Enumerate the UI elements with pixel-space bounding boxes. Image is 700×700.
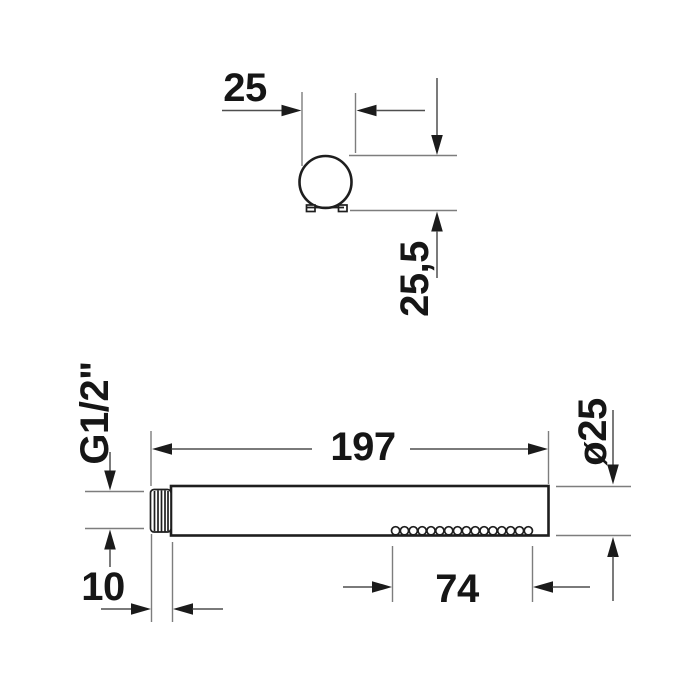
head-circle [300,156,352,208]
dim-nozzle-field-74: 74 [343,546,590,611]
arrowhead-right-icon [131,603,151,615]
nozzle [507,527,515,535]
nozzle [471,527,479,535]
arrowhead-up-icon [607,537,619,557]
top-view: 25 25,5 [222,66,457,317]
arrowhead-up-icon [104,530,116,550]
nozzle [498,527,506,535]
nozzle [524,527,532,535]
nozzle [392,527,400,535]
dim-label-g12: G1/2" [73,361,117,464]
thread-connector [151,490,172,533]
arrowhead-down-icon [104,471,116,491]
drawing-canvas: 25 25,5 [0,0,700,700]
dim-diameter-o25: ø25 [556,398,631,601]
nozzle [462,527,470,535]
arrowhead-right-icon [528,443,548,455]
dim-label-25-5: 25,5 [393,241,437,317]
arrowhead-left-icon [173,603,193,615]
nozzle [453,527,461,535]
dim-thread-g12: G1/2" [73,361,144,567]
dim-label-25: 25 [223,66,267,110]
head-outline [300,156,352,212]
arrowhead-down-icon [607,465,619,485]
nozzle [445,527,453,535]
dim-label-74: 74 [435,567,480,611]
dim-label-197: 197 [330,425,395,469]
arrowhead-up-icon [431,212,443,232]
dim-label-o25: ø25 [571,398,615,466]
side-view: 197 G1/2" [73,361,631,622]
nozzle [409,527,417,535]
arrowhead-down-icon [431,135,443,155]
handshower-body [151,486,549,536]
nozzle [400,527,408,535]
dim-label-10: 10 [81,565,125,609]
nozzle [427,527,435,535]
arrowhead-left-icon [533,581,553,593]
arrowhead-right-icon [372,581,392,593]
dim-height-25-5: 25,5 [349,78,457,317]
technical-drawing: 25 25,5 [0,0,700,700]
dim-thread-length-10: 10 [81,534,223,622]
nozzle [515,527,523,535]
nozzle [480,527,488,535]
nozzle [418,527,426,535]
dim-length-197: 197 [151,425,549,486]
dim-diameter-25: 25 [222,66,425,166]
nozzle [489,527,497,535]
arrowhead-left-icon [152,443,172,455]
arrowhead-right-icon [282,105,302,117]
arrowhead-left-icon [357,105,377,117]
nozzle [436,527,444,535]
